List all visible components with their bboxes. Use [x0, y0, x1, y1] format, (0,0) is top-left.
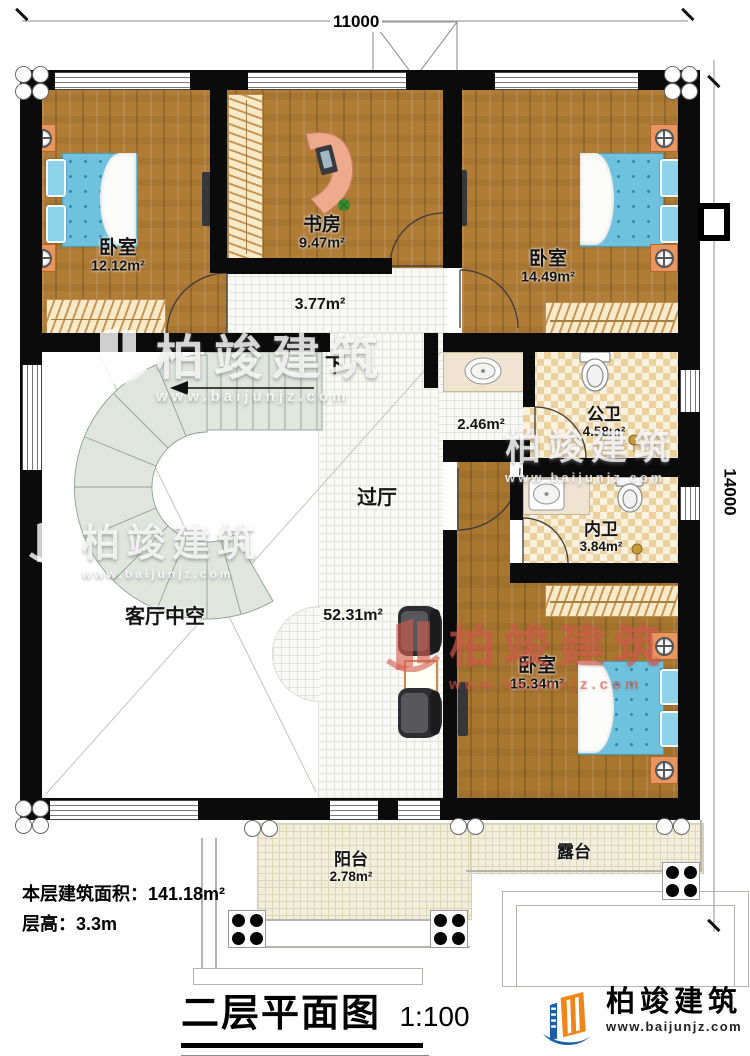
hall-bulge — [272, 606, 320, 702]
lamp-icon — [655, 129, 674, 148]
wall-privbath-bottom — [510, 563, 680, 583]
room-label-terrace: 露台 — [557, 844, 591, 863]
wall-right — [678, 70, 700, 820]
room-label-bed2: 卧室14.49m² — [521, 250, 575, 287]
staircase — [74, 352, 322, 619]
window-top-bed1 — [55, 72, 190, 90]
room-label-hall: 过厅 — [357, 487, 397, 509]
wall-vanity-stub — [424, 333, 438, 388]
bath-counter — [523, 477, 590, 515]
lamp-icon — [655, 249, 674, 268]
floor-height-text: 层高：3.3m — [22, 910, 117, 936]
scale-label: 1:100 — [399, 1001, 469, 1032]
area-label-hall: 52.31m² — [323, 607, 383, 625]
brand-url: www.baijunjz.com — [606, 1019, 742, 1034]
column-marker — [662, 862, 700, 900]
brand-logo: 柏竣建筑 www.baijunjz.com — [538, 986, 742, 1048]
area-label-vanity: 2.46m² — [457, 417, 505, 434]
window-top-study — [248, 72, 406, 90]
nightstand — [650, 632, 678, 660]
balcony-door — [398, 800, 440, 820]
lamp-icon — [655, 637, 674, 656]
nightstand — [650, 756, 678, 784]
bed — [578, 661, 678, 753]
armchair — [398, 688, 442, 738]
wall-bath-divider — [523, 458, 680, 477]
title-underline — [181, 1043, 423, 1048]
bed — [580, 153, 678, 245]
window-left-void — [22, 365, 42, 470]
room-label-bed1: 卧室12.12m² — [91, 239, 145, 276]
floor-plan-canvas: 卧室12.12m² 书房9.47m² 卧室14.49m² 3.77m² 下 2.… — [0, 0, 750, 1056]
column-marker — [228, 910, 266, 948]
wall-hall-bed3-top — [443, 440, 530, 462]
dim-top: 11000 — [330, 12, 382, 32]
nightstand — [650, 244, 678, 272]
wall-bed1-study — [210, 90, 227, 273]
page-title: 二层平面图 — [181, 993, 381, 1035]
window-right-privbath — [680, 487, 700, 520]
vanity-counter — [443, 352, 525, 392]
nightstand — [650, 124, 678, 152]
room-label-study: 书房9.47m² — [299, 216, 345, 253]
wardrobe — [545, 585, 680, 617]
room-label-privbath: 内卫3.84m² — [580, 521, 623, 555]
wall-study-bed2 — [443, 90, 462, 268]
watermark: 柏竣建筑 www.baijunjz.com — [28, 512, 262, 581]
brand-logo-icon — [538, 986, 600, 1048]
flue-box — [698, 203, 730, 241]
tv-icon — [458, 682, 468, 736]
window-right-pubbath — [680, 370, 700, 412]
window-top-bed2 — [495, 72, 638, 90]
window-bottom-hall — [330, 800, 378, 820]
wall-bed1-bottom — [42, 333, 330, 352]
bedroom3-vestibule-floor — [457, 462, 510, 583]
room-label-void: 客厅中空 — [125, 606, 205, 628]
wardrobe — [228, 94, 263, 260]
window-bottom-void — [50, 800, 198, 820]
wall-privbath-left — [510, 477, 523, 520]
wall-pubbath-left — [523, 352, 535, 407]
room-label-pubbath: 公卫4.58m² — [583, 406, 626, 440]
lamp-icon — [655, 761, 674, 780]
area-label-corridor: 3.77m² — [295, 296, 346, 314]
title-block: 二层平面图 1:100 — [181, 982, 470, 1056]
stair-down-arrow-icon — [170, 381, 314, 395]
dim-right: 14000 — [720, 465, 740, 518]
wall-hall-bed3 — [443, 530, 457, 800]
armchair — [398, 606, 442, 656]
brand-name: 柏竣建筑 — [606, 986, 742, 1019]
floor-area-text: 本层建筑面积：141.18m² — [22, 880, 225, 906]
wall-study-bottom — [227, 258, 392, 274]
column-marker — [430, 910, 468, 948]
bed — [44, 153, 136, 245]
down-label: 下 — [325, 355, 345, 377]
room-label-balcony: 阳台2.78m² — [330, 851, 373, 885]
room-label-bed3: 卧室15.34m² — [510, 657, 564, 694]
wall-bed2-bottom — [443, 333, 700, 352]
